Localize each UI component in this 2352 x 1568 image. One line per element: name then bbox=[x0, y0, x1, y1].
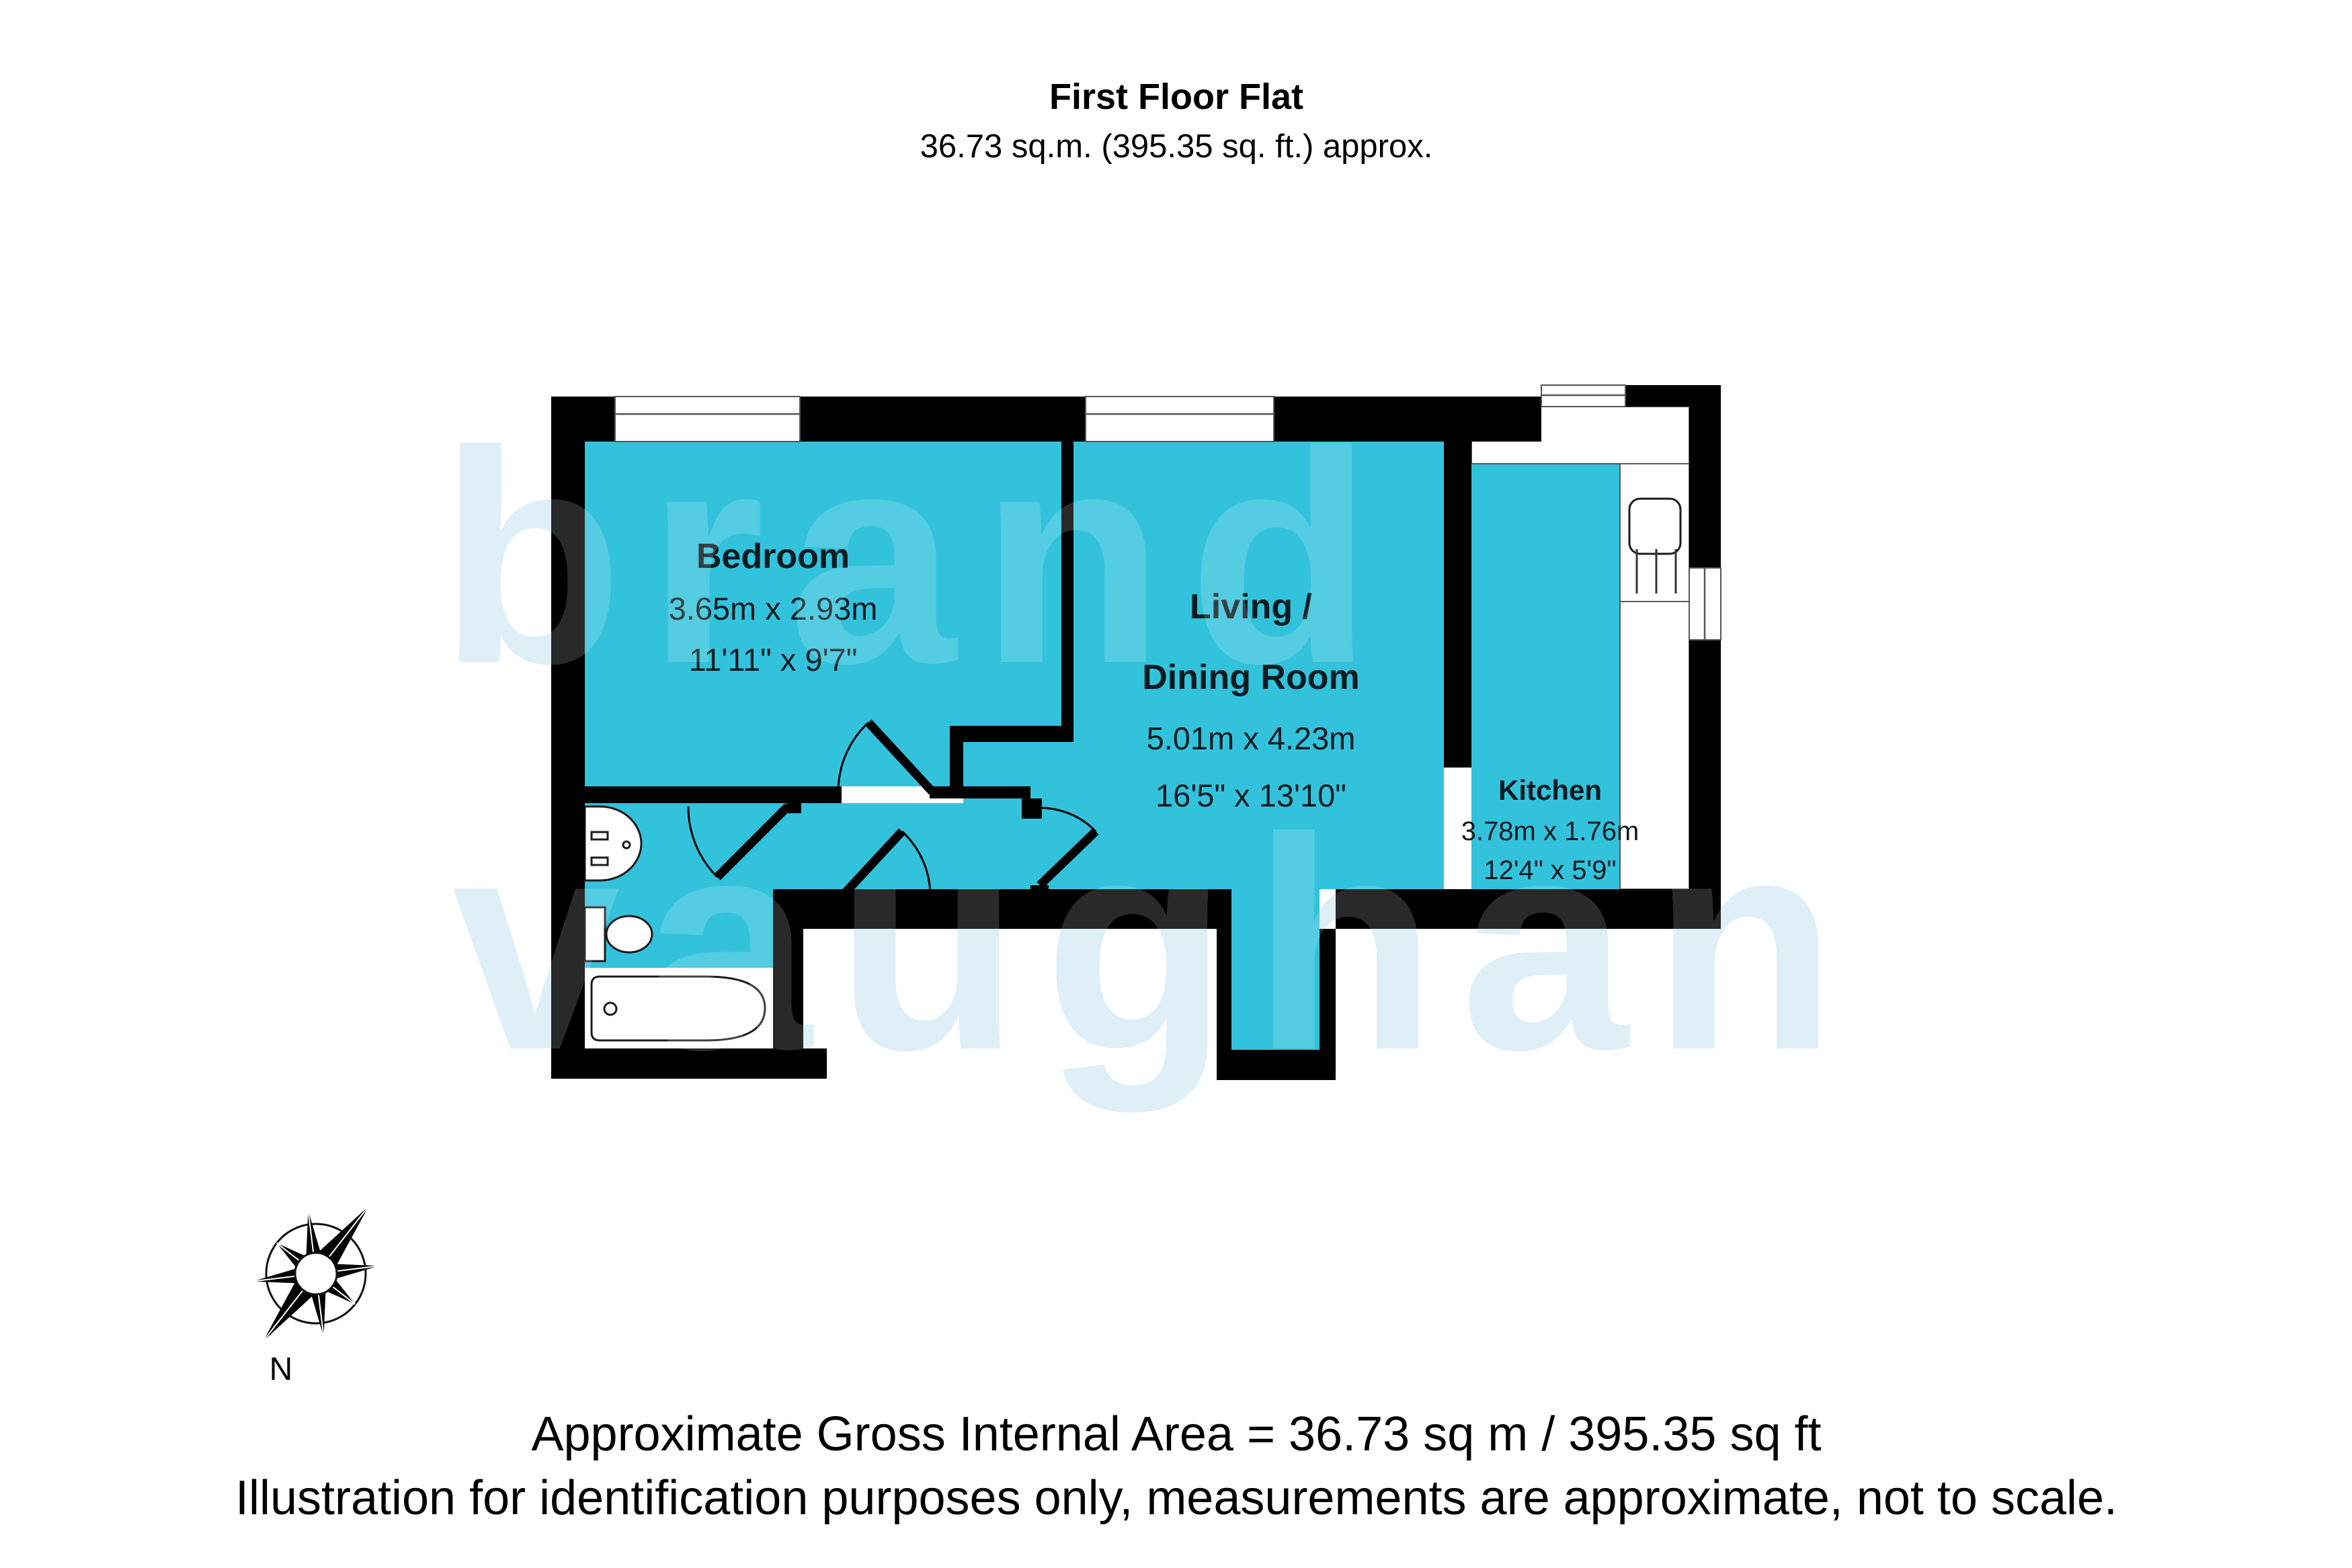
floorplan-page: { "title": { "line1": "First Floor Flat"… bbox=[0, 0, 2352, 1568]
watermark-word-brand-overlay: brand bbox=[438, 389, 1396, 727]
compass: N bbox=[224, 1175, 408, 1387]
kitchen-sink bbox=[1629, 499, 1680, 554]
footer: Approximate Gross Internal Area = 36.73 … bbox=[235, 1407, 2117, 1525]
wall-bedroom-living-jog bbox=[950, 726, 1073, 742]
compass-star bbox=[224, 1175, 408, 1372]
page-title: First Floor Flat bbox=[1049, 77, 1303, 117]
floorplan-canvas: brand vaughan First Floor Flat 36.73 sq.… bbox=[0, 0, 2352, 1568]
kitchen-side-window bbox=[1689, 568, 1721, 640]
header: First Floor Flat 36.73 sq.m. (395.35 sq.… bbox=[920, 77, 1433, 165]
kitchen-top-window bbox=[1541, 385, 1625, 407]
wall-living-kitchen bbox=[1444, 442, 1471, 768]
page-subtitle: 36.73 sq.m. (395.35 sq. ft.) approx. bbox=[920, 128, 1433, 165]
footer-area-line: Approximate Gross Internal Area = 36.73 … bbox=[531, 1407, 1821, 1461]
footer-disclaimer-line: Illustration for identification purposes… bbox=[235, 1471, 2117, 1525]
compass-north-label: N bbox=[270, 1352, 293, 1387]
watermark-word-vaughan-overlay: vaughan bbox=[452, 776, 1860, 1114]
